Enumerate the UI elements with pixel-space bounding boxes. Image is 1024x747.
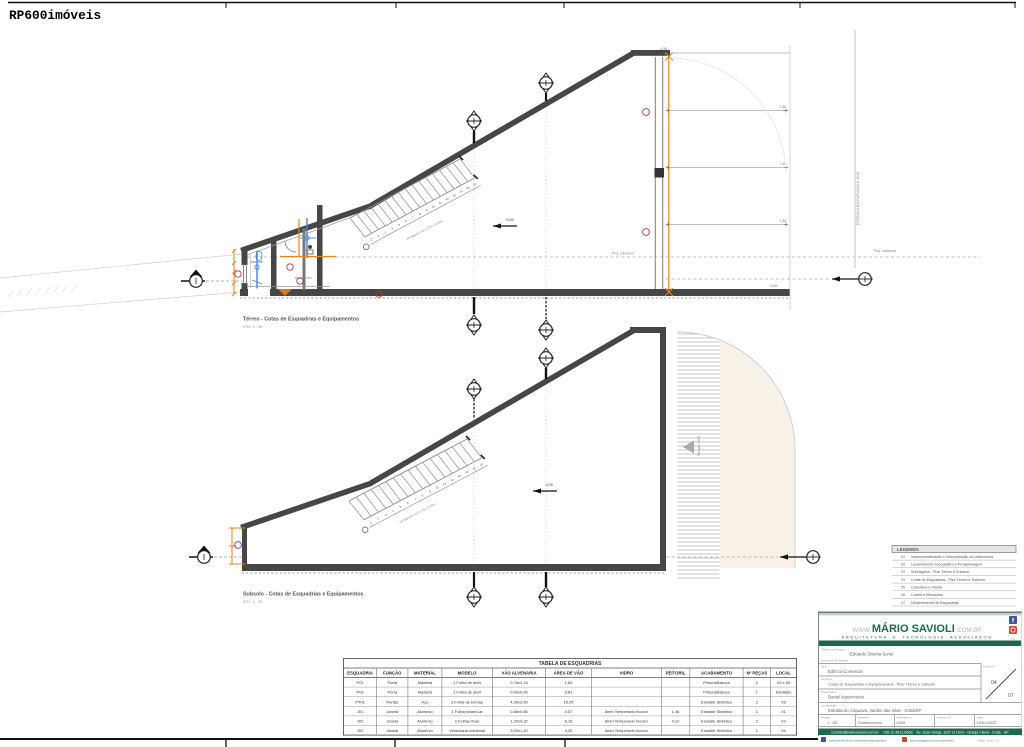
svg-text:10: 10 [436,486,440,490]
svg-text:P01: P01 [357,680,365,685]
svg-text:Eduardo Diserta Suriel: Eduardo Diserta Suriel [850,652,893,657]
svg-text:Assunto: Assunto [821,677,832,681]
svg-text:13: 13 [452,193,456,197]
svg-text:Cortes e Elevações: Cortes e Elevações [911,593,943,597]
svg-text:11: 11 [439,201,442,205]
svg-text:Pintura/Branca: Pintura/Branca [703,690,730,695]
svg-text:VÃO ALVENARIA: VÃO ALVENARIA [501,671,536,676]
svg-text:Impermeabilização e Intercepta: Impermeabilização e Interceptação de pav… [911,555,994,559]
svg-text:06: 06 [901,593,905,597]
svg-text:10: 10 [432,204,436,208]
svg-text:01 e 02: 01 e 02 [777,680,791,685]
svg-text:03: 03 [781,699,786,704]
svg-text:LOCAL: LOCAL [776,671,791,676]
svg-text:J03: J03 [357,728,364,733]
svg-text:TABELA DE ESQUADRIAS: TABELA DE ESQUADRIAS [539,661,602,667]
svg-text:0409: 0409 [897,720,907,725]
svg-text:4,30x3,50: 4,30x3,50 [510,699,528,704]
svg-text:Alumínio: Alumínio [417,709,433,714]
svg-text:Térreo - Cotas de Esquadrias e: Térreo - Cotas de Esquadrias e Equipamen… [243,317,359,323]
svg-text:Cobertura e Planta: Cobertura e Planta [911,586,943,590]
svg-text:Subsolo - Cotas de Esquadrias: Subsolo - Cotas de Esquadrias e Equipame… [243,592,363,598]
svg-text:contato@mariosavioli.com.br: contato@mariosavioli.com.br +55 11 4613 … [831,731,1009,735]
svg-text:Detalhamento de Esquadrias: Detalhamento de Esquadrias [911,601,959,605]
svg-text:2.2: 2.2 [1011,637,1016,641]
svg-text:Esmalte Sintético: Esmalte Sintético [701,699,733,704]
svg-text:2 Folhas fixas: 2 Folhas fixas [455,719,480,724]
svg-text:1,63: 1,63 [565,680,574,685]
svg-text:15,05: 15,05 [563,699,574,704]
svg-text:Confeccionou: Confeccionou [858,720,882,725]
svg-text:1,46: 1,46 [780,219,786,223]
svg-text:www.instagram.com/mariosavioli: www.instagram.com/mariosavioli [910,739,954,743]
svg-text:PEITORIL: PEITORIL [666,671,686,676]
svg-text:+0,00: +0,00 [505,218,514,222]
svg-text:Esmalte Sintético: Esmalte Sintético [701,728,733,733]
svg-text:01: 01 [901,555,905,559]
svg-text:0,76x2,15: 0,76x2,15 [510,680,528,685]
svg-text:ESC: 1 : 50: ESC: 1 : 50 [243,600,262,604]
svg-text:Janela: Janela [386,728,399,733]
svg-text:ESQUADRIA: ESQUADRIA [347,671,373,676]
svg-text:J02: J02 [357,719,364,724]
svg-text:0,81: 0,81 [565,690,574,695]
svg-text:Edifício Comercial: Edifício Comercial [828,669,863,674]
svg-text:Arquivo Nº: Arquivo Nº [937,716,952,720]
svg-text:1 Folha de enrolar: 1 Folha de enrolar [451,699,484,704]
svg-text:Esmalte Sintético: Esmalte Sintético [701,719,733,724]
svg-text:04: 04 [901,578,905,582]
svg-text:02: 02 [901,563,905,567]
svg-text:16: 16 [473,182,477,186]
svg-text:Tipo: Tipo [821,665,827,669]
svg-text:Cotas de Esquadrias e Equipame: Cotas de Esquadrias e Equipamentos - Pis… [828,682,935,687]
svg-text:Folha Nº: Folha Nº [983,665,996,669]
svg-text:Sanitário: Sanitário [776,690,793,695]
svg-text:8mm Temperado Incolor: 8mm Temperado Incolor [605,709,649,714]
svg-text:Localização: Localização [821,704,837,708]
svg-text:16: 16 [480,462,484,466]
svg-text:Masc. verso 2.2: Masc. verso 2.2 [978,739,1000,743]
svg-text:1 : 50: 1 : 50 [827,720,838,725]
svg-text:Nº PEÇAS: Nº PEÇAS [747,671,768,676]
svg-text:Estrada do Capuava, Jardim das: Estrada do Capuava, Jardim das Islas - C… [828,708,922,713]
svg-text:Área: 2,1m²: Área: 2,1m² [295,276,312,280]
svg-text:04: 04 [781,728,786,733]
svg-text:Proj. cobertura: Proj. cobertura [874,249,896,253]
svg-text:4,10: 4,10 [672,719,681,724]
svg-text:04: 04 [991,680,997,686]
svg-text:Porta: Porta [388,690,398,695]
svg-text:3,00x1,40: 3,00x1,40 [510,728,528,733]
svg-text:Porta: Porta [388,680,398,685]
svg-text:Veneziana industrial: Veneziana industrial [449,728,485,733]
svg-text:Esmalte Sintético: Esmalte Sintético [701,709,733,714]
svg-text:Proprietário: Proprietário [821,690,837,694]
svg-text:Alumínio: Alumínio [417,728,433,733]
svg-text:Data: Data [977,716,984,720]
svg-text:J01: J01 [357,709,364,714]
svg-text:1 Folha de abrir: 1 Folha de abrir [453,680,482,685]
svg-text:ÁREA DE VÃO: ÁREA DE VÃO [554,671,584,676]
svg-text:VIDRO: VIDRO [620,671,634,676]
svg-text:03: 03 [901,570,905,574]
svg-text:1,46: 1,46 [780,105,786,109]
svg-text:07: 07 [1008,693,1014,699]
svg-text:Cliente do Projeto: Cliente do Projeto [821,648,845,652]
svg-text:Janela: Janela [386,719,399,724]
svg-text:Proj. cobertura: Proj. cobertura [612,252,634,256]
svg-text:Alumínio: Alumínio [417,719,433,724]
svg-text:14,80: 14,80 [770,284,778,288]
svg-text:Desenho: Desenho [858,716,870,720]
svg-text:Referência: Referência [897,716,912,720]
svg-text:Cotas de Esquadrias - Piso Tér: Cotas de Esquadrias - Piso Térreo e Subs… [911,578,985,582]
svg-text:12/01/2022: 12/01/2022 [977,720,998,725]
svg-text:Sondagens - Piso Térreo e Subs: Sondagens - Piso Térreo e Subsolo [911,570,969,574]
svg-text:12: 12 [446,197,450,201]
svg-text:12: 12 [450,478,454,482]
svg-text:www.facebook.com/mariosaviolia: www.facebook.com/mariosavioliarquitetura [829,739,886,743]
svg-text:MATERIAL: MATERIAL [414,671,436,676]
svg-text:Madeira: Madeira [418,690,433,695]
svg-text:Pintura/Branca: Pintura/Branca [703,680,730,685]
svg-text:4,20: 4,20 [565,728,574,733]
svg-text:ARQUITETURA E TECNOLOGIA AS: ARQUITETURA E TECNOLOGIA ASSOCIADOS [842,635,993,640]
svg-text:14: 14 [459,190,463,194]
svg-text:P02: P02 [357,690,365,695]
svg-text:Escala: Escala [821,716,830,720]
svg-text:RP600imóveis: RP600imóveis [9,8,101,23]
svg-text:0,90x0,90: 0,90x0,90 [510,690,528,695]
svg-text:1,20x4,32: 1,20x4,32 [510,719,528,724]
svg-text:07: 07 [901,601,905,605]
svg-text:Rampa i=25%: Rampa i=25% [697,436,701,456]
svg-text:ACABAMENTO: ACABAMENTO [701,671,733,676]
svg-text:1 Folha maxim-ar: 1 Folha maxim-ar [452,709,484,714]
svg-text:15: 15 [472,466,476,470]
svg-text:01: 01 [781,709,786,714]
svg-text:05: 05 [901,586,905,590]
svg-text:14: 14 [465,470,469,474]
svg-text:Portão: Portão [386,699,399,704]
svg-text:Janela: Janela [386,709,399,714]
svg-text:ESTRADA DO CAPUAVA N 2015: ESTRADA DO CAPUAVA N 2015 [856,172,860,225]
svg-text:MODELO: MODELO [458,671,478,676]
svg-text:PT01: PT01 [355,699,365,704]
svg-text:03: 03 [781,719,786,724]
svg-text:1 Folha de abrir: 1 Folha de abrir [453,690,482,695]
svg-text:LEGENDA: LEGENDA [897,547,920,552]
svg-text:Consultor do Projeto: Consultor do Projeto [821,659,849,663]
svg-text:8mm Temperado Incolor: 8mm Temperado Incolor [605,719,649,724]
svg-text:ESC: 1 : 50: ESC: 1 : 50 [243,325,262,329]
svg-text:1,46: 1,46 [672,709,681,714]
svg-text:5,18: 5,18 [565,719,574,724]
svg-text:8mm Temperado Incolor: 8mm Temperado Incolor [605,728,649,733]
svg-text:Daniel Nascimento: Daniel Nascimento [828,695,865,700]
svg-text:Aço: Aço [421,699,429,704]
svg-text:0,57: 0,57 [565,709,574,714]
svg-text:FUNÇÃO: FUNÇÃO [383,671,402,676]
svg-text:15: 15 [466,186,470,190]
svg-text:Levantamento topográfico e Ter: Levantamento topográfico e Terraplanagem [911,563,982,567]
svg-text:Madeira: Madeira [418,680,433,685]
svg-text:0,86x0,66: 0,86x0,66 [510,709,528,714]
svg-text:13: 13 [458,474,462,478]
svg-text:4,38: 4,38 [660,47,667,51]
svg-text:-3,00: -3,00 [545,483,553,487]
svg-text:11: 11 [443,482,446,486]
